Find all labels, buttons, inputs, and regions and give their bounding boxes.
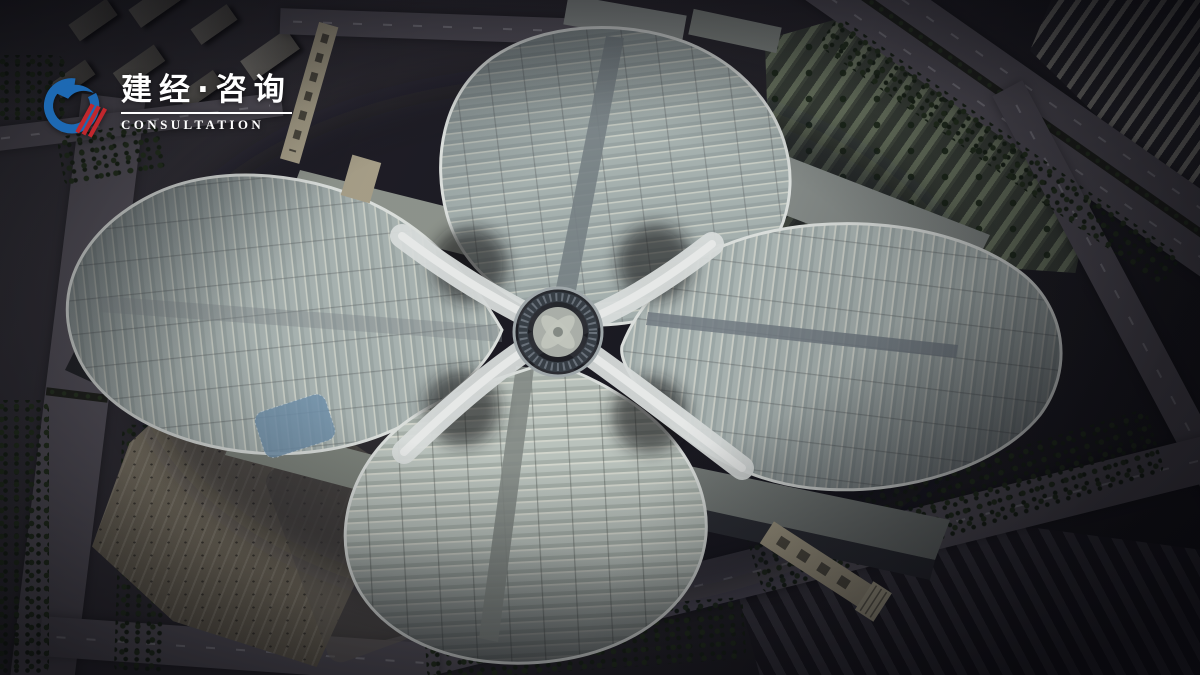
aerial-rendering: 建经·咨询 CONSULTATION — [0, 0, 1200, 675]
brand-name-english: CONSULTATION — [121, 117, 292, 133]
brand-logo-text: 建经·咨询 CONSULTATION — [121, 73, 292, 132]
brand-name-chinese: 建经·咨询 — [121, 73, 292, 107]
logo-divider — [121, 112, 292, 114]
central-atrium-hub — [514, 288, 602, 376]
swoosh-circle-logo-icon — [38, 68, 108, 138]
brand-logo: 建经·咨询 CONSULTATION — [38, 68, 292, 138]
north-podium-roof — [688, 9, 781, 53]
logo-red-stripes — [77, 104, 105, 136]
